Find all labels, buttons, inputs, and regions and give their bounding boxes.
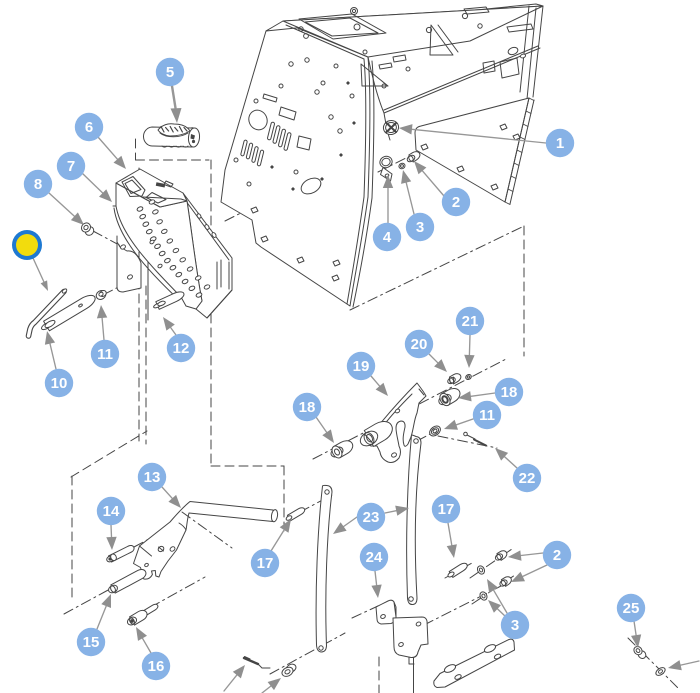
svg-text:19: 19: [353, 358, 370, 375]
svg-text:3: 3: [511, 617, 519, 634]
svg-text:4: 4: [383, 229, 392, 246]
svg-text:10: 10: [51, 375, 68, 392]
svg-text:24: 24: [366, 549, 383, 566]
svg-text:3: 3: [416, 219, 424, 236]
svg-text:16: 16: [148, 658, 165, 675]
svg-text:13: 13: [144, 469, 161, 486]
svg-text:22: 22: [519, 470, 536, 487]
svg-text:17: 17: [257, 555, 274, 572]
svg-text:14: 14: [103, 503, 120, 520]
svg-text:20: 20: [411, 336, 428, 353]
svg-text:2: 2: [553, 547, 561, 564]
svg-text:21: 21: [462, 313, 479, 330]
svg-text:6: 6: [85, 119, 93, 136]
svg-text:12: 12: [173, 340, 190, 357]
svg-text:25: 25: [623, 600, 640, 617]
svg-text:23: 23: [363, 509, 380, 526]
svg-text:11: 11: [97, 346, 113, 363]
svg-text:17: 17: [438, 501, 455, 518]
svg-text:15: 15: [83, 634, 100, 651]
svg-text:5: 5: [166, 64, 174, 81]
svg-text:18: 18: [501, 384, 518, 401]
svg-text:2: 2: [452, 194, 460, 211]
svg-text:11: 11: [479, 407, 495, 424]
svg-text:1: 1: [556, 135, 564, 152]
svg-text:18: 18: [299, 399, 316, 416]
svg-text:7: 7: [67, 158, 75, 175]
svg-text:8: 8: [34, 176, 42, 193]
